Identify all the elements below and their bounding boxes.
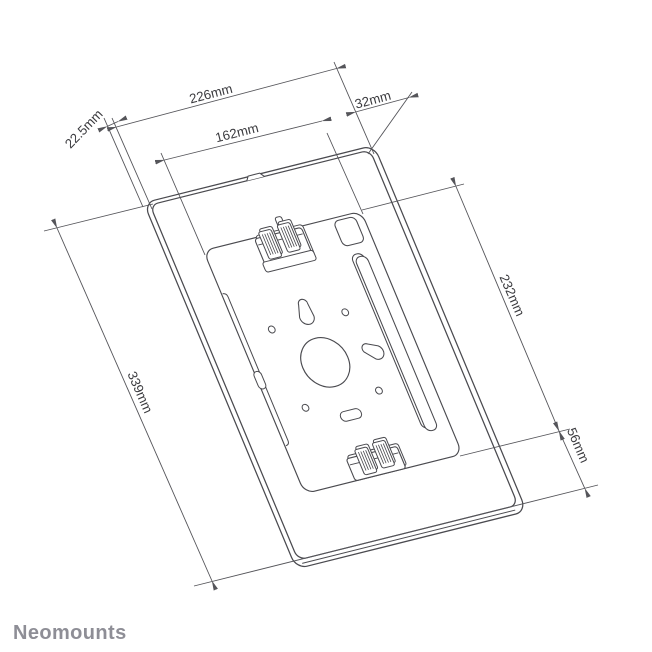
- dim-label-162: 162mm: [214, 120, 260, 145]
- dim-label-232: 232mm: [496, 272, 527, 318]
- dim-line-22-5: [107, 122, 118, 127]
- technical-drawing: 226mm 162mm 32mm 22.5mm 232mm 56mm 339mm…: [0, 0, 652, 652]
- dim-line-226: [117, 69, 337, 128]
- dim-label-226: 226mm: [188, 81, 234, 107]
- dim-label-32: 32mm: [353, 88, 392, 112]
- enclosure-drawing: [143, 145, 526, 569]
- dim-label-56: 56mm: [564, 425, 592, 465]
- dim-label-22-5: 22.5mm: [62, 107, 106, 152]
- brand-logo: Neomounts: [13, 622, 127, 644]
